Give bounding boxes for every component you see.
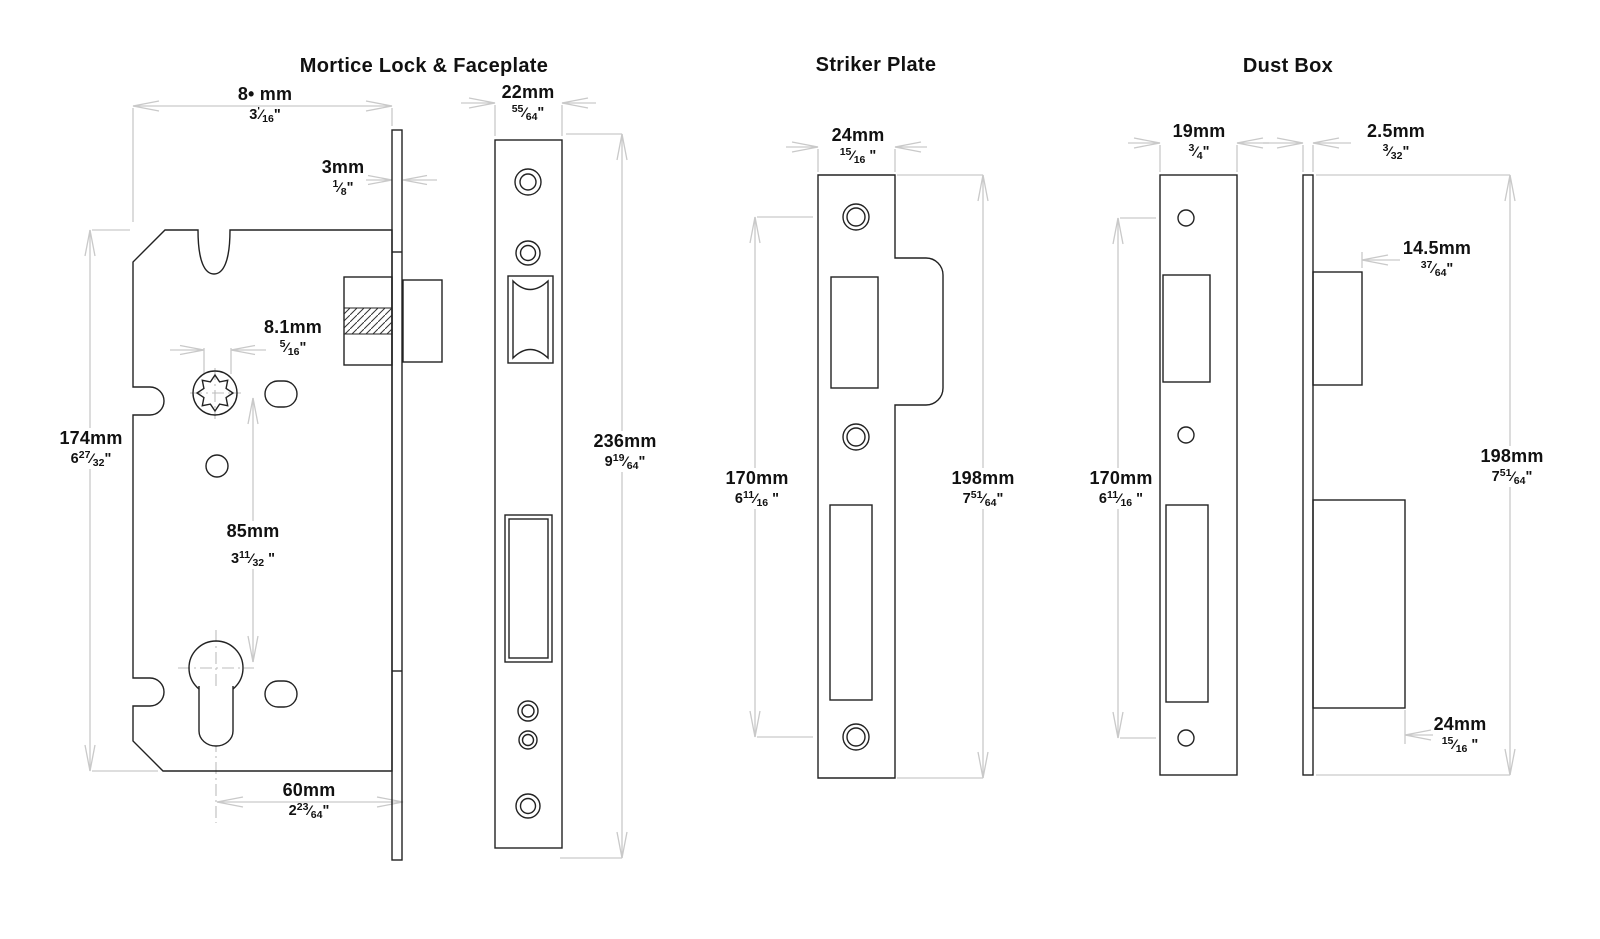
dim-mm: 24mm: [832, 126, 885, 146]
fixing-hole: [206, 455, 228, 477]
screw-hole-inner: [521, 799, 536, 814]
screw-hole-inner: [520, 174, 536, 190]
dim-mm: 24mm: [1434, 715, 1487, 735]
dim-label-striker-height: 198mm 751⁄64": [945, 468, 1020, 509]
dim-inch: 3⁄32": [1367, 143, 1425, 162]
section-title-mortice: Mortice Lock & Faceplate: [300, 55, 548, 78]
dustbox-upper-box: [1313, 272, 1362, 385]
slot-hole: [265, 381, 297, 407]
screw-hole-inner: [522, 705, 534, 717]
dim-label-dustbox-centres: 170mm 611⁄16 ": [1083, 468, 1158, 509]
dim-mm: 3mm: [322, 158, 365, 178]
dim-inch: 1⁄8": [322, 179, 365, 198]
dim-label-dustbox-upper-depth: 14.5mm 37⁄64": [1403, 239, 1471, 278]
screw-hole: [519, 731, 537, 749]
dim-label-dustbox-height: 198mm 751⁄64": [1474, 446, 1549, 487]
dim-mm: 198mm: [951, 469, 1014, 489]
dim-label-faceplate-height: 236mm 919⁄64": [587, 431, 662, 472]
dim-mm: 236mm: [593, 432, 656, 452]
screw-hole: [1178, 427, 1194, 443]
dim-mm: 85mm: [227, 522, 280, 542]
dim-inch: 223⁄64": [283, 802, 336, 821]
dim-inch: 751⁄64": [951, 490, 1014, 509]
cylinder-keyway-fill: [199, 686, 233, 746]
dim-mm: 198mm: [1480, 447, 1543, 467]
technical-drawing-page: Mortice Lock & Faceplate Striker Plate D…: [0, 0, 1600, 939]
mortice-lock-body: [133, 130, 442, 860]
dustbox-front-plate: [1160, 175, 1237, 775]
dim-label-dustbox-lower-depth: 24mm 15⁄16 ": [1434, 715, 1487, 754]
screw-hole-inner: [847, 208, 865, 226]
screw-hole: [1178, 210, 1194, 226]
dimension-lines: [85, 98, 1515, 858]
dim-mm: 22mm: [502, 83, 555, 103]
dim-inch: 15⁄16 ": [832, 147, 885, 166]
dim-label-striker-width: 24mm 15⁄16 ": [832, 126, 885, 165]
striker-plate-view: [818, 175, 943, 778]
screw-hole: [515, 169, 541, 195]
dim-label-face-thickness: 3mm 1⁄8": [322, 158, 365, 197]
screw-hole: [518, 701, 538, 721]
dim-mm: 8• mm: [238, 85, 292, 105]
dim-mm: 2.5mm: [1367, 122, 1425, 142]
dim-label-follower: 8.1mm 5⁄16": [264, 318, 322, 357]
dim-inch: 15⁄16 ": [1434, 736, 1487, 755]
dim-inch: 311⁄32 ": [227, 550, 280, 569]
latch-bolt-head: [403, 280, 442, 362]
centerlines: [178, 368, 254, 823]
dim-label-centres: 85mm 311⁄32 ": [221, 521, 286, 569]
dim-inch: 751⁄64": [1480, 468, 1543, 487]
dim-mm: 170mm: [725, 469, 788, 489]
dim-inch: 919⁄64": [593, 453, 656, 472]
screw-hole: [516, 794, 540, 818]
dim-label-dustbox-thickness: 2.5mm 3⁄32": [1367, 122, 1425, 161]
dim-mm: 170mm: [1089, 469, 1152, 489]
dim-inch: 5⁄16": [264, 339, 322, 358]
dust-box-view: [1160, 175, 1405, 775]
slot-hole: [265, 681, 297, 707]
dim-inch: 55⁄64": [502, 104, 555, 123]
dim-mm: 14.5mm: [1403, 239, 1471, 259]
latch-opening: [1163, 275, 1210, 382]
dim-inch: 611⁄16 ": [725, 490, 788, 509]
dim-inch: 611⁄16 ": [1089, 490, 1152, 509]
dim-inch: 3'⁄16": [238, 106, 292, 125]
deadbolt-opening: [830, 505, 872, 700]
dim-label-case-height: 174mm 627⁄32": [53, 428, 128, 469]
deadbolt-opening: [505, 515, 552, 662]
screw-hole-inner: [847, 428, 865, 446]
screw-hole: [1178, 730, 1194, 746]
deadbolt-opening: [1166, 505, 1208, 702]
dustbox-lower-box: [1313, 500, 1405, 708]
screw-hole: [516, 241, 540, 265]
dim-mm: 174mm: [59, 429, 122, 449]
screw-hole-inner: [523, 735, 534, 746]
dim-mm: 8.1mm: [264, 318, 322, 338]
faceplate-front-view: [495, 140, 562, 848]
dim-inch: 627⁄32": [59, 450, 122, 469]
striker-plate-outline: [818, 175, 943, 778]
faceplate-edge-view: [392, 130, 402, 860]
drawing-canvas: [0, 0, 1600, 939]
dim-inch: 37⁄64": [1403, 260, 1471, 279]
latch-bolt-face: [513, 281, 548, 358]
dim-label-striker-centres: 170mm 611⁄16 ": [719, 468, 794, 509]
latch-opening: [831, 277, 878, 388]
screw-hole-inner: [521, 246, 536, 261]
dim-label-dustbox-width: 19mm 3⁄4": [1173, 122, 1226, 161]
latch-spring-hatch: [344, 308, 392, 334]
section-title-dustbox: Dust Box: [1243, 55, 1333, 78]
dim-inch: 3⁄4": [1173, 143, 1226, 162]
deadbolt-opening-inner: [509, 519, 548, 658]
dim-mm: 60mm: [283, 781, 336, 801]
dim-label-backset: 60mm 223⁄64": [283, 781, 336, 820]
dustbox-side-plate: [1303, 175, 1313, 775]
screw-hole-inner: [847, 728, 865, 746]
dim-mm: 19mm: [1173, 122, 1226, 142]
dim-label-faceplate-width: 22mm 55⁄64": [502, 83, 555, 122]
dim-label-case-width: 8• mm 3'⁄16": [238, 85, 292, 124]
section-title-striker: Striker Plate: [816, 54, 937, 77]
